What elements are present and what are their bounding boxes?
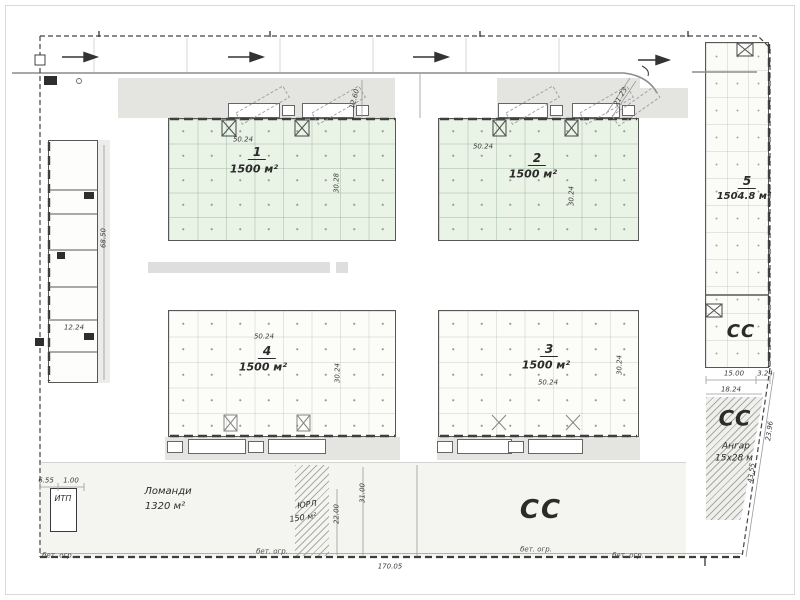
site-plan: 50.24 1 1500 м² 30.28 50.24 2 1500 м² 30… — [0, 0, 800, 600]
fence-label-1: бет. огр. — [42, 553, 74, 560]
b4-area: 1500 м² — [239, 362, 287, 373]
hangar-len-dim: 15.00 — [724, 371, 744, 378]
yard-cc-label: СС — [520, 497, 562, 523]
shaft-symbols — [222, 43, 753, 317]
lomandi-name: Ломанди — [144, 487, 191, 497]
dashed-walls — [49, 44, 769, 436]
yurl-len1-dim: 31.00 — [360, 483, 367, 503]
b2-area: 1500 м² — [509, 169, 557, 180]
dimension-lines — [40, 74, 774, 557]
linework-layer — [0, 0, 800, 600]
yurl-len2-dim: 22.00 — [334, 504, 341, 524]
misc-symbols — [35, 55, 82, 346]
b3-number: 3 — [540, 343, 558, 357]
road-lines — [12, 72, 757, 93]
left-building-length-dim: 68.50 — [101, 228, 108, 248]
b1-top-dim: 50.24 — [233, 137, 253, 144]
lomandi-area: 1320 м² — [145, 502, 185, 512]
b2-top-dim: 50.24 — [473, 144, 493, 151]
fence-posts — [94, 38, 559, 72]
b3-side-dim: 30.24 — [617, 355, 624, 375]
hangar-size: 15х28 м — [715, 455, 753, 464]
b1-side-dim: 30.28 — [334, 173, 341, 193]
b2-number: 2 — [528, 152, 546, 166]
fence-label-2: бет. огр. — [256, 549, 288, 556]
b4-top-dim: 50.24 — [254, 334, 274, 341]
fence-label-3: бет. огр. — [520, 547, 552, 554]
b4-number: 4 — [258, 345, 276, 359]
left-building-width-dim: 12.24 — [64, 325, 84, 332]
hangar-width-dim: 18.24 — [721, 387, 741, 394]
b5-cc-label: СС — [727, 323, 755, 341]
site-length-dim: 170.05 — [378, 564, 403, 571]
shaft-symbols-light — [224, 415, 580, 431]
b3-bottom-dim: 50.24 — [538, 380, 558, 387]
b3-area: 1500 м² — [522, 360, 570, 371]
itp-label: ИТП — [55, 495, 72, 503]
b1-number: 1 — [248, 146, 266, 160]
site-boundary — [40, 36, 770, 557]
hangar-gap-dim: 3.24 — [757, 371, 773, 378]
itp-gap-dim: 1.00 — [63, 478, 79, 485]
b4-side-dim: 30.24 — [335, 363, 342, 383]
b5-area: 1504.8 м² — [717, 192, 772, 202]
itp-width-dim: 6.55 — [38, 478, 54, 485]
b1-area: 1500 м² — [230, 164, 278, 175]
b2-side-dim: 30.24 — [569, 186, 576, 206]
hangar-cc-label: СС — [719, 409, 752, 430]
hangar-name: Ангар — [722, 443, 750, 452]
fence-label-4: бет. огр. — [612, 553, 644, 560]
b5-number: 5 — [738, 175, 756, 189]
